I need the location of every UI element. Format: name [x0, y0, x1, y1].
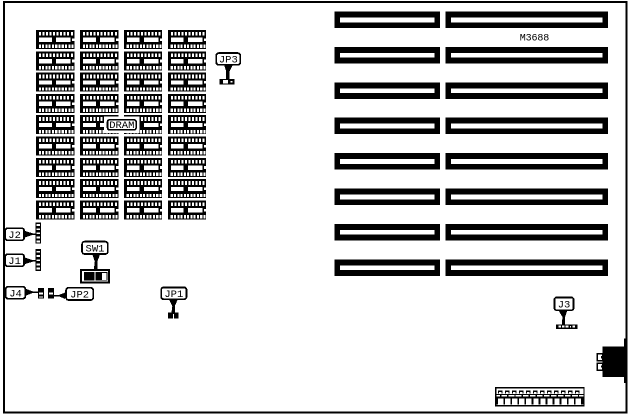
svg-text:DRAM: DRAM — [109, 120, 134, 132]
svg-text:J2: J2 — [8, 230, 21, 242]
svg-text:J3: J3 — [558, 300, 571, 312]
svg-text:M3688: M3688 — [520, 34, 550, 45]
svg-text:J1: J1 — [8, 256, 21, 268]
svg-text:SW1: SW1 — [86, 244, 105, 256]
svg-text:JP1: JP1 — [164, 289, 183, 301]
svg-text:JP3: JP3 — [219, 55, 238, 67]
svg-text:JP2: JP2 — [70, 290, 89, 302]
svg-text:J4: J4 — [9, 288, 22, 300]
